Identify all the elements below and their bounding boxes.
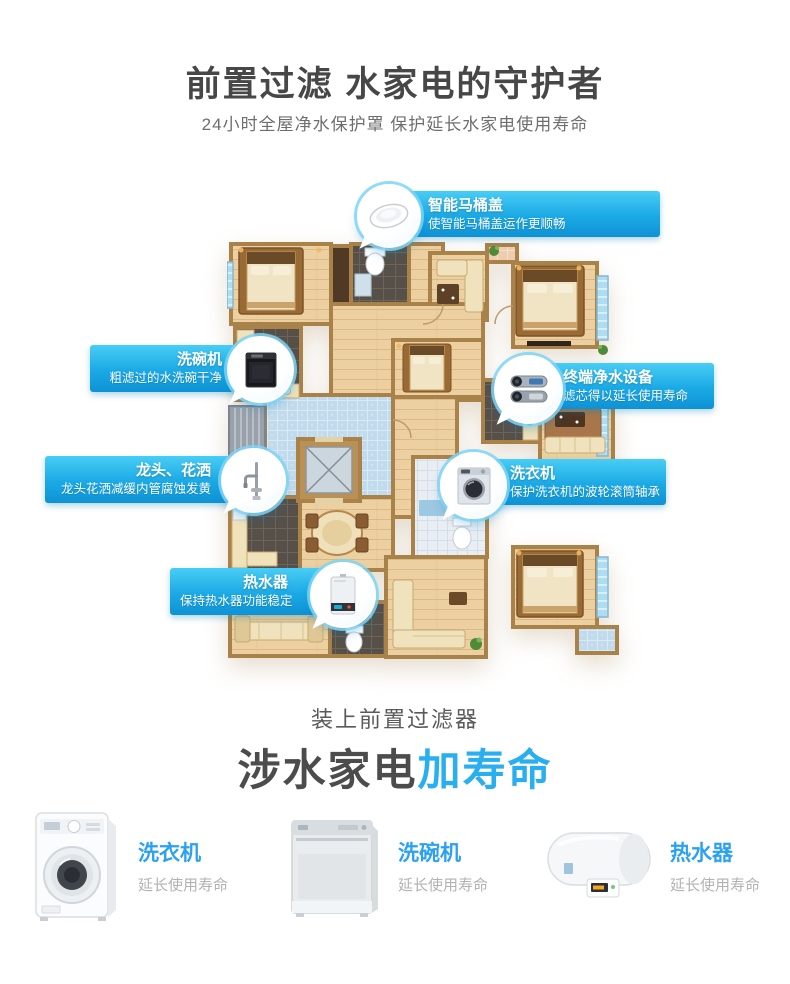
washing-machine-icon <box>455 466 493 506</box>
callout-title: 洗衣机 <box>510 464 656 484</box>
water-heater-image <box>546 827 654 905</box>
bed-bottomright <box>517 551 583 617</box>
callout-smart-toilet-lid: 智能马桶盖 使智能马桶盖运作更顺畅 <box>404 191 660 237</box>
product-desc: 延长使用寿命 <box>398 874 488 895</box>
product-desc: 延长使用寿命 <box>670 874 760 895</box>
callout-desc: 保持热水器功能稳定 <box>180 593 288 610</box>
product-text: 洗碗机 延长使用寿命 <box>398 837 488 895</box>
product-name: 热水器 <box>670 837 760 867</box>
water-purifier-icon <box>507 372 551 408</box>
footer-headline-accent: 加寿命 <box>418 747 553 795</box>
product-text: 洗衣机 延长使用寿命 <box>138 837 228 895</box>
water-purifier-bubble <box>494 355 563 424</box>
callout-desc: 保护洗衣机的波轮滚筒轴承 <box>510 484 656 501</box>
faucet-shower-bubble <box>221 448 286 513</box>
product-text: 热水器 延长使用寿命 <box>670 837 760 895</box>
footer-headline-main: 涉水家电 <box>238 747 418 795</box>
page: 前置过滤 水家电的守护者 24小时全屋净水保护罩 保护延长水家电使用寿命 <box>0 0 790 984</box>
dining-set <box>306 511 368 555</box>
callout-title: 洗碗机 <box>100 350 222 370</box>
product-washing-machine: 洗衣机 延长使用寿命 <box>30 807 228 925</box>
callout-desc: 龙头花洒减缓内管腐蚀发黄 <box>55 481 211 498</box>
smart-toilet-lid-icon <box>367 199 411 233</box>
product-desc: 延长使用寿命 <box>138 874 228 895</box>
bed-topleft <box>239 248 303 314</box>
faucet-shower-icon <box>239 460 269 502</box>
dishwasher-image <box>286 813 382 919</box>
water-heater-bubble <box>310 562 376 628</box>
callout-desc: 滤芯得以延长使用寿命 <box>563 388 704 405</box>
callout-washing-machine: 洗衣机 保护洗衣机的波轮滚筒轴承 <box>486 459 666 505</box>
dishwasher-icon <box>243 351 279 389</box>
living-midright <box>545 408 605 453</box>
washing-machine-bubble <box>440 452 507 519</box>
bed-topright <box>516 266 584 346</box>
footer-headline: 涉水家电加寿命 <box>0 736 790 798</box>
page-subtitle: 24小时全屋净水保护罩 保护延长水家电使用寿命 <box>0 110 790 135</box>
callout-desc: 使智能马桶盖运作更顺畅 <box>428 216 650 233</box>
page-title: 前置过滤 水家电的守护者 <box>0 56 790 107</box>
callout-water-purifier: 终端净水设备 滤芯得以延长使用寿命 <box>539 363 714 409</box>
callout-desc: 粗滤过的水洗碗干净 <box>100 370 222 387</box>
product-row: 洗衣机 延长使用寿命 洗碗机 延长使用寿命 <box>0 796 790 936</box>
callout-title: 终端净水设备 <box>563 368 704 388</box>
callout-title: 智能马桶盖 <box>428 196 650 216</box>
dishwasher-bubble <box>227 336 294 403</box>
smart-toilet-lid-bubble <box>357 184 421 248</box>
water-heater-icon <box>328 573 358 617</box>
bed-middle <box>403 344 451 392</box>
product-name: 洗碗机 <box>398 837 488 867</box>
callout-title: 龙头、花洒 <box>55 461 211 481</box>
footer-lead: 装上前置过滤器 <box>0 702 790 734</box>
washing-machine-image <box>30 807 122 925</box>
product-dishwasher: 洗碗机 延长使用寿命 <box>286 813 488 919</box>
product-name: 洗衣机 <box>138 837 228 867</box>
floorplan-elevator <box>298 437 360 503</box>
callout-title: 热水器 <box>180 573 288 593</box>
product-water-heater: 热水器 延长使用寿命 <box>546 827 760 905</box>
